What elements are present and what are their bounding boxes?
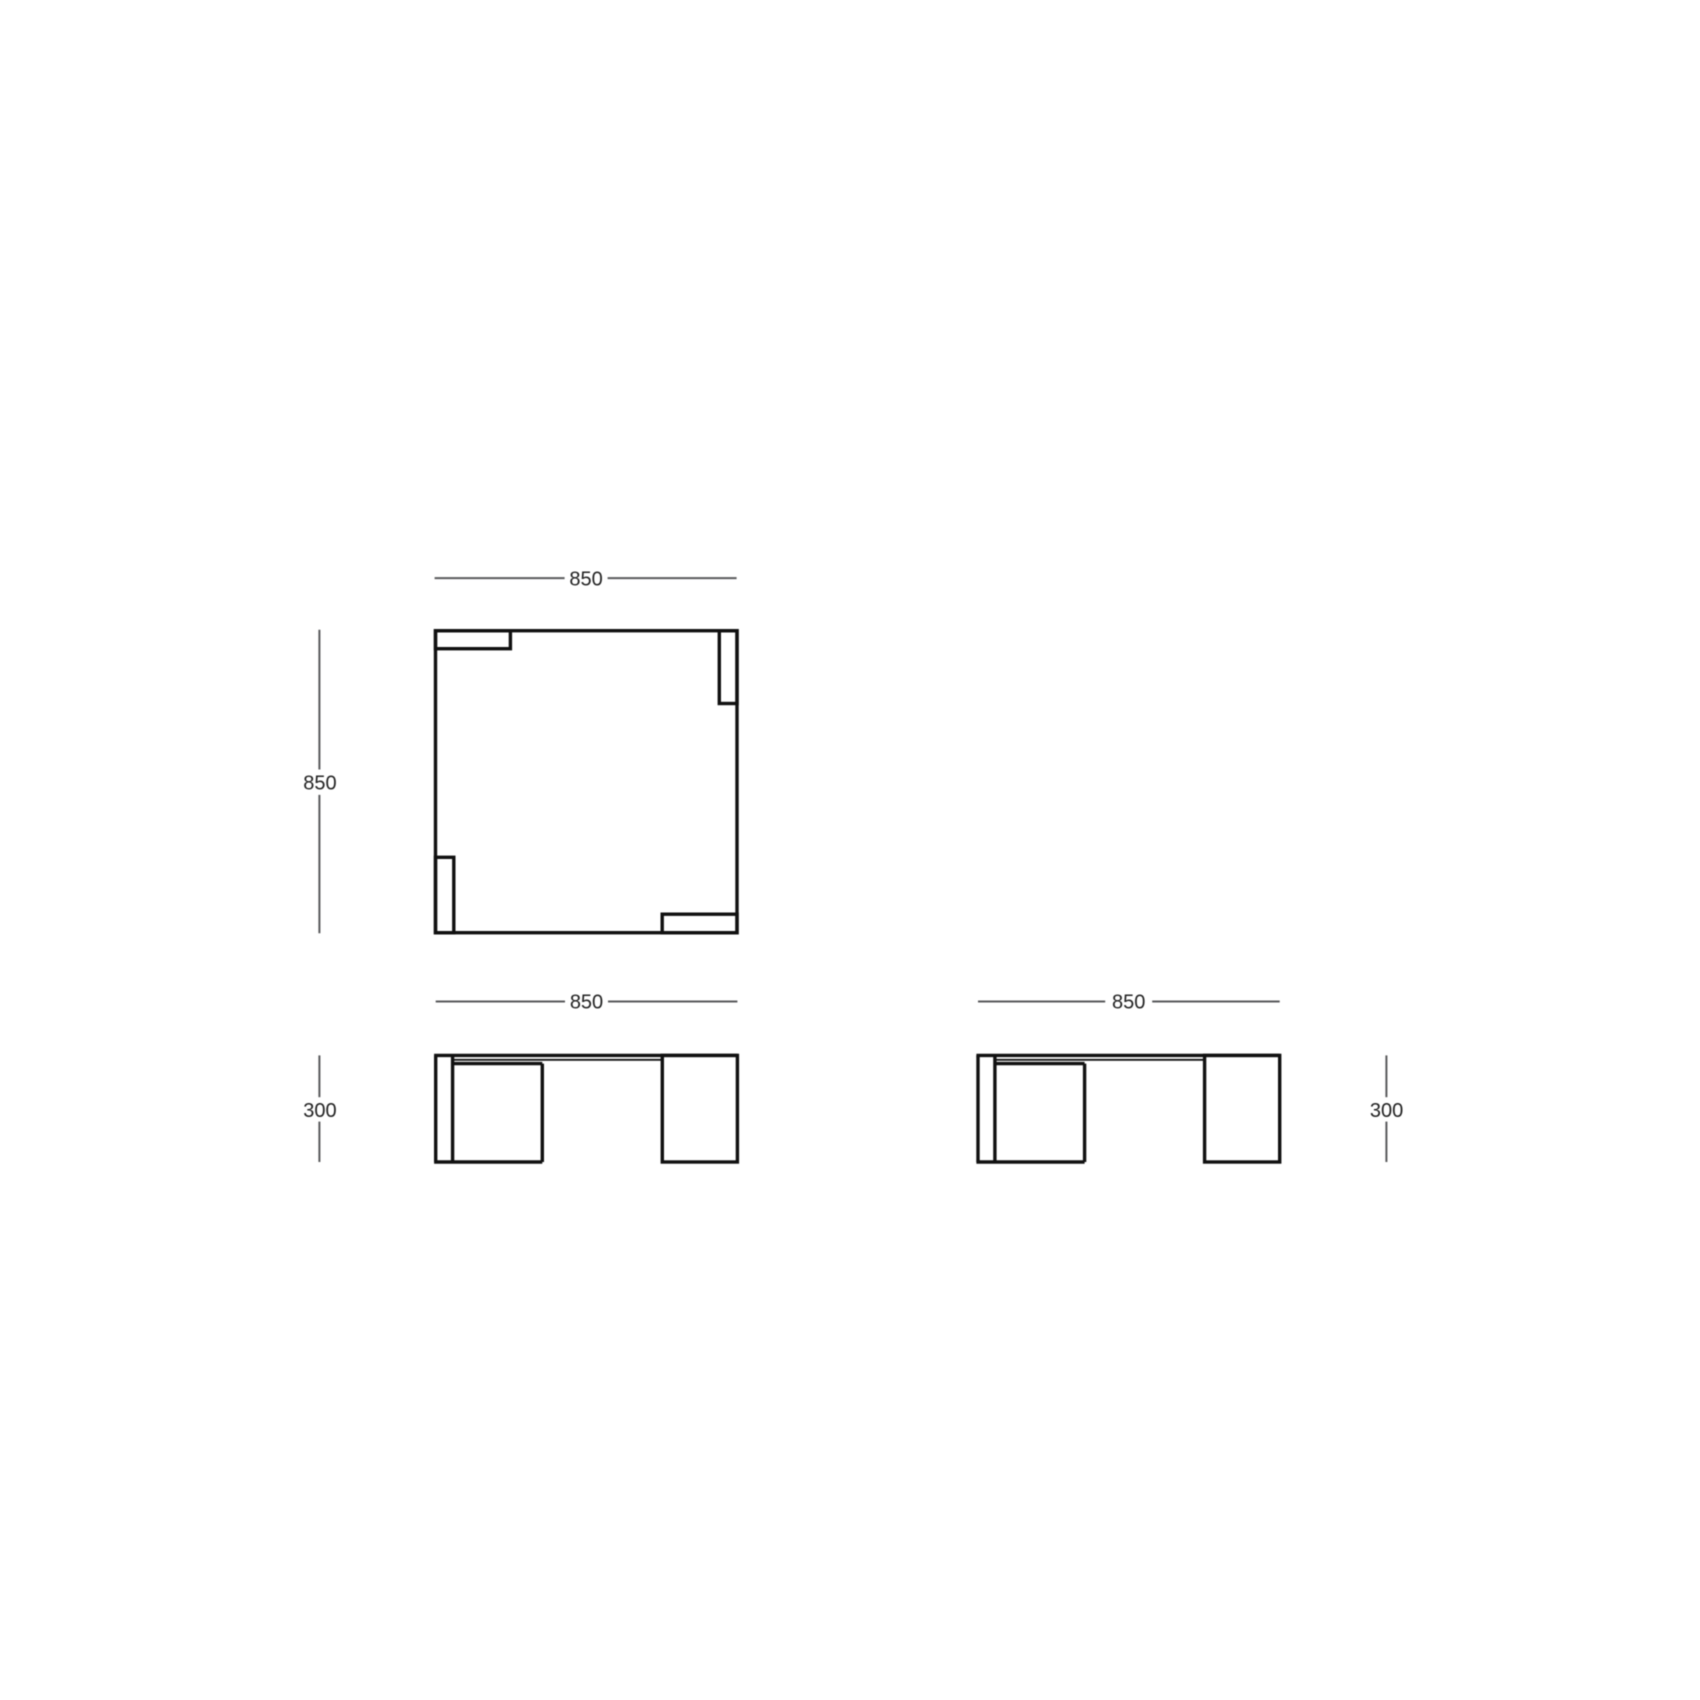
- svg-text:300: 300: [1370, 1100, 1403, 1122]
- svg-text:850: 850: [303, 772, 336, 794]
- svg-text:850: 850: [1112, 992, 1145, 1014]
- svg-text:850: 850: [570, 992, 603, 1014]
- svg-text:300: 300: [303, 1100, 336, 1122]
- svg-text:850: 850: [569, 568, 602, 590]
